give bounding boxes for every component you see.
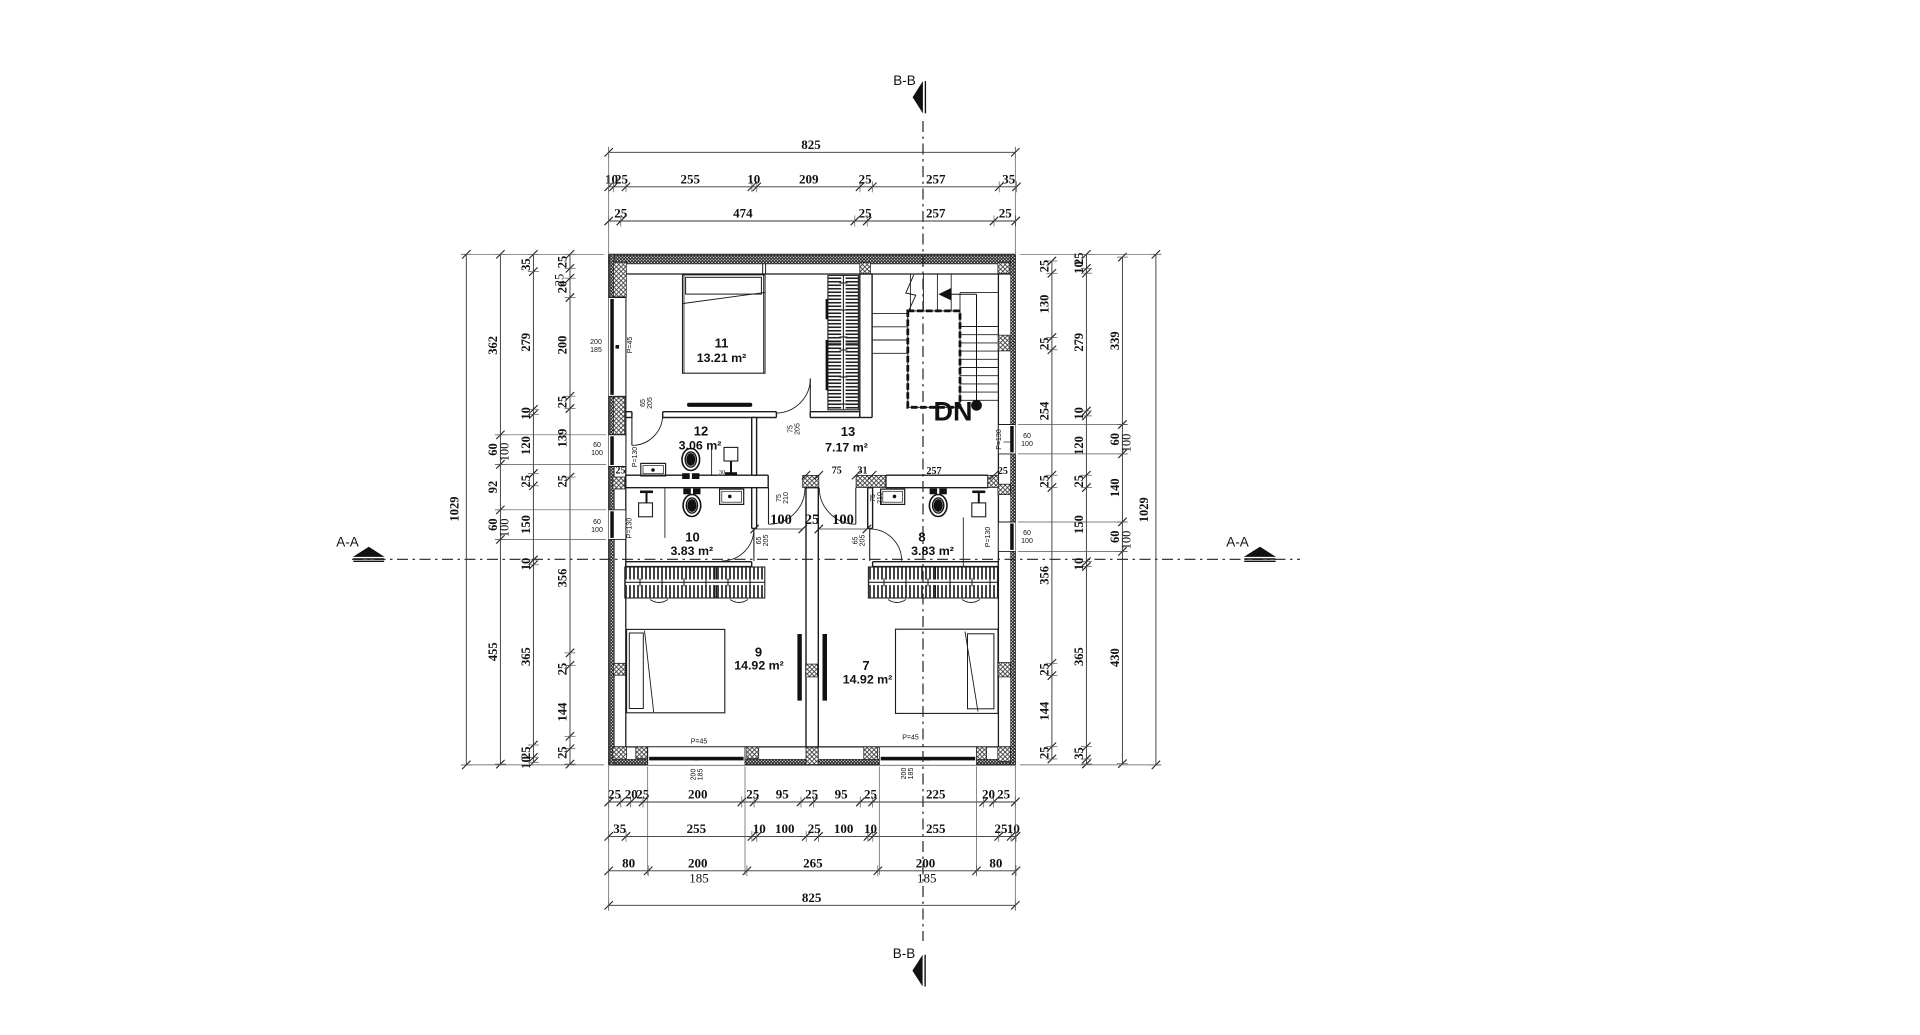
svg-text:95: 95 (776, 787, 790, 802)
svg-text:25: 25 (615, 171, 629, 186)
svg-text:25: 25 (864, 787, 878, 802)
svg-text:35: 35 (1072, 747, 1086, 760)
svg-text:10: 10 (519, 407, 533, 420)
svg-text:255: 255 (680, 171, 700, 186)
svg-text:9: 9 (755, 645, 762, 660)
svg-text:25: 25 (1037, 475, 1051, 488)
svg-text:144: 144 (556, 702, 570, 722)
svg-text:P=130: P=130 (996, 429, 1003, 450)
svg-text:60: 60 (593, 519, 601, 526)
svg-text:10: 10 (1072, 558, 1086, 571)
svg-text:365: 365 (1072, 647, 1086, 666)
svg-text:25: 25 (1037, 663, 1051, 676)
svg-text:1029: 1029 (447, 497, 461, 522)
svg-text:25: 25 (1037, 337, 1051, 350)
svg-text:10: 10 (1072, 261, 1086, 274)
svg-text:100: 100 (1120, 531, 1134, 550)
svg-text:25: 25 (556, 396, 570, 409)
svg-text:7.17 m²: 7.17 m² (825, 441, 868, 455)
svg-text:3.83 m²: 3.83 m² (911, 544, 954, 558)
svg-text:200: 200 (901, 768, 908, 780)
svg-text:100: 100 (1021, 538, 1033, 545)
svg-text:100: 100 (591, 450, 603, 457)
svg-text:100: 100 (591, 527, 603, 534)
svg-text:225: 225 (926, 787, 946, 802)
svg-text:140: 140 (1108, 478, 1122, 497)
svg-text:185: 185 (908, 768, 915, 780)
svg-text:185: 185 (698, 769, 705, 781)
svg-text:185: 185 (590, 347, 602, 354)
svg-text:35: 35 (519, 258, 533, 271)
svg-text:25: 25 (553, 274, 567, 287)
svg-text:25: 25 (859, 206, 873, 221)
svg-text:P=130: P=130 (632, 447, 639, 468)
svg-text:279: 279 (1072, 333, 1086, 352)
svg-text:30: 30 (719, 469, 726, 476)
svg-text:144: 144 (1037, 701, 1051, 721)
svg-text:A-A: A-A (1226, 535, 1249, 550)
svg-text:92: 92 (486, 481, 500, 494)
svg-text:205: 205 (647, 397, 654, 409)
svg-text:365: 365 (519, 647, 533, 666)
svg-text:25: 25 (859, 171, 873, 186)
svg-text:25: 25 (556, 256, 570, 269)
svg-text:10: 10 (1007, 821, 1020, 836)
svg-text:210: 210 (877, 492, 884, 504)
svg-text:200: 200 (590, 339, 602, 346)
svg-text:205: 205 (860, 535, 867, 547)
svg-text:11: 11 (715, 336, 729, 351)
svg-text:65: 65 (640, 399, 647, 407)
svg-text:100: 100 (775, 821, 795, 836)
svg-text:100: 100 (834, 821, 854, 836)
svg-text:139: 139 (556, 429, 570, 448)
svg-text:20: 20 (982, 787, 995, 802)
svg-text:3.06 m²: 3.06 m² (679, 439, 722, 453)
svg-text:7: 7 (862, 658, 869, 673)
svg-text:209: 209 (799, 171, 819, 186)
svg-text:10: 10 (1072, 407, 1086, 420)
svg-text:257: 257 (927, 466, 942, 477)
svg-text:P=130: P=130 (626, 518, 633, 539)
svg-text:205: 205 (795, 423, 802, 435)
svg-text:35: 35 (613, 821, 627, 836)
svg-text:100: 100 (1021, 441, 1033, 448)
svg-text:65: 65 (853, 537, 860, 545)
svg-text:25: 25 (1037, 260, 1051, 273)
svg-text:13.21 m²: 13.21 m² (697, 351, 747, 365)
svg-text:P=45: P=45 (902, 735, 919, 742)
svg-text:100: 100 (832, 512, 854, 528)
svg-text:25: 25 (519, 475, 533, 488)
svg-text:25: 25 (997, 787, 1011, 802)
svg-text:80: 80 (622, 855, 635, 870)
svg-text:356: 356 (1037, 566, 1051, 585)
svg-text:130: 130 (1037, 295, 1051, 314)
svg-text:75: 75 (776, 494, 783, 502)
svg-text:3.83 m²: 3.83 m² (670, 544, 713, 558)
svg-text:95: 95 (835, 787, 849, 802)
svg-text:150: 150 (1072, 515, 1086, 534)
svg-text:14.92 m²: 14.92 m² (843, 673, 893, 687)
svg-text:B-B: B-B (893, 946, 916, 961)
svg-text:60: 60 (1023, 530, 1031, 537)
svg-text:100: 100 (770, 512, 792, 528)
svg-text:200: 200 (688, 855, 708, 870)
svg-text:100: 100 (498, 519, 512, 538)
svg-text:362: 362 (486, 336, 500, 355)
svg-text:474: 474 (733, 206, 753, 221)
svg-text:12: 12 (694, 424, 708, 439)
svg-text:60: 60 (593, 442, 601, 449)
svg-text:100: 100 (498, 443, 512, 462)
svg-text:339: 339 (1108, 331, 1122, 350)
svg-text:185: 185 (689, 871, 709, 886)
svg-text:120: 120 (519, 436, 533, 455)
svg-text:60: 60 (1023, 433, 1031, 440)
svg-text:25: 25 (1037, 747, 1051, 760)
svg-text:1029: 1029 (1137, 497, 1151, 522)
svg-text:10: 10 (753, 821, 766, 836)
svg-text:255: 255 (687, 821, 707, 836)
svg-text:35: 35 (1002, 171, 1016, 186)
svg-text:31: 31 (858, 466, 868, 477)
svg-text:10: 10 (519, 756, 533, 769)
svg-text:210: 210 (783, 492, 790, 504)
svg-text:14.92 m²: 14.92 m² (734, 659, 784, 673)
svg-text:200: 200 (688, 787, 708, 802)
svg-text:25: 25 (556, 746, 570, 759)
svg-text:B-B: B-B (893, 73, 916, 88)
svg-text:279: 279 (519, 333, 533, 352)
svg-text:25: 25 (998, 466, 1008, 477)
svg-text:75: 75 (832, 466, 842, 477)
svg-text:200: 200 (556, 336, 570, 355)
svg-text:8: 8 (918, 530, 925, 545)
svg-text:200: 200 (916, 855, 936, 870)
svg-text:P=45: P=45 (691, 739, 708, 746)
svg-text:80: 80 (989, 855, 1002, 870)
svg-text:A-A: A-A (336, 535, 359, 550)
svg-text:257: 257 (926, 171, 946, 186)
svg-text:DN: DN (934, 397, 973, 427)
svg-text:75: 75 (870, 494, 877, 502)
svg-text:265: 265 (803, 855, 823, 870)
svg-text:25: 25 (746, 787, 760, 802)
svg-text:75: 75 (788, 425, 795, 433)
svg-text:25: 25 (805, 787, 819, 802)
svg-text:185: 185 (917, 871, 937, 886)
svg-text:254: 254 (1037, 401, 1051, 421)
svg-text:13: 13 (841, 424, 855, 439)
svg-text:150: 150 (519, 515, 533, 534)
svg-text:25: 25 (614, 206, 628, 221)
svg-text:25: 25 (999, 206, 1013, 221)
svg-text:25: 25 (608, 787, 622, 802)
svg-text:P=130: P=130 (985, 527, 992, 548)
svg-text:825: 825 (802, 890, 822, 905)
svg-text:25: 25 (1072, 475, 1086, 488)
svg-text:25: 25 (556, 475, 570, 488)
svg-text:10: 10 (864, 821, 877, 836)
svg-text:P=45: P=45 (627, 337, 634, 354)
svg-text:430: 430 (1108, 648, 1122, 667)
svg-text:100: 100 (1120, 434, 1134, 453)
svg-text:10: 10 (747, 171, 760, 186)
svg-text:65: 65 (756, 537, 763, 545)
svg-text:25: 25 (556, 663, 570, 676)
svg-text:205: 205 (763, 535, 770, 547)
svg-text:25: 25 (616, 466, 626, 477)
svg-text:120: 120 (1072, 436, 1086, 455)
svg-text:255: 255 (926, 821, 946, 836)
svg-text:825: 825 (801, 137, 821, 152)
svg-text:200: 200 (691, 769, 698, 781)
svg-text:25: 25 (808, 821, 822, 836)
svg-text:10: 10 (685, 530, 699, 545)
svg-text:356: 356 (556, 569, 570, 588)
svg-text:455: 455 (486, 642, 500, 661)
svg-text:10: 10 (519, 558, 533, 571)
svg-text:257: 257 (926, 206, 946, 221)
